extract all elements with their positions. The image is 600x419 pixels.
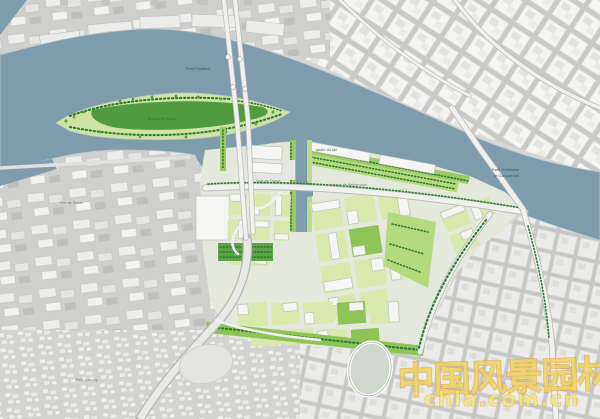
label-avenue-bethencourt: Avenue de Béthencourt	[330, 183, 367, 187]
label-jardin-du-rail: jardin du rail	[315, 148, 337, 152]
label-pont-guillaume-1: Pont Guillaume	[492, 168, 519, 172]
watermark-url-text: chla.com.cn	[424, 387, 580, 411]
watermark: 中国风景园林网 chla.com.cn	[397, 351, 600, 411]
district-shed-2	[252, 162, 282, 174]
masterplan-map: Pont Flaubert Presqu'île Rollet jardin d…	[0, 0, 600, 419]
warehouse-west	[196, 196, 230, 240]
map-canvas: Pont Flaubert Presqu'île Rollet jardin d…	[0, 0, 600, 419]
label-petit-quevilly: Petit-Quevilly	[76, 378, 98, 382]
label-port-de-rouen: Port de Rouen	[60, 201, 83, 205]
label-quai-de-france: Quai de France	[256, 179, 281, 183]
label-presquile-rollet: Presqu'île Rollet	[148, 117, 176, 121]
label-pont-flaubert: Pont Flaubert	[186, 67, 210, 71]
label-pont-guillaume-2: le Conquérant	[494, 174, 519, 178]
